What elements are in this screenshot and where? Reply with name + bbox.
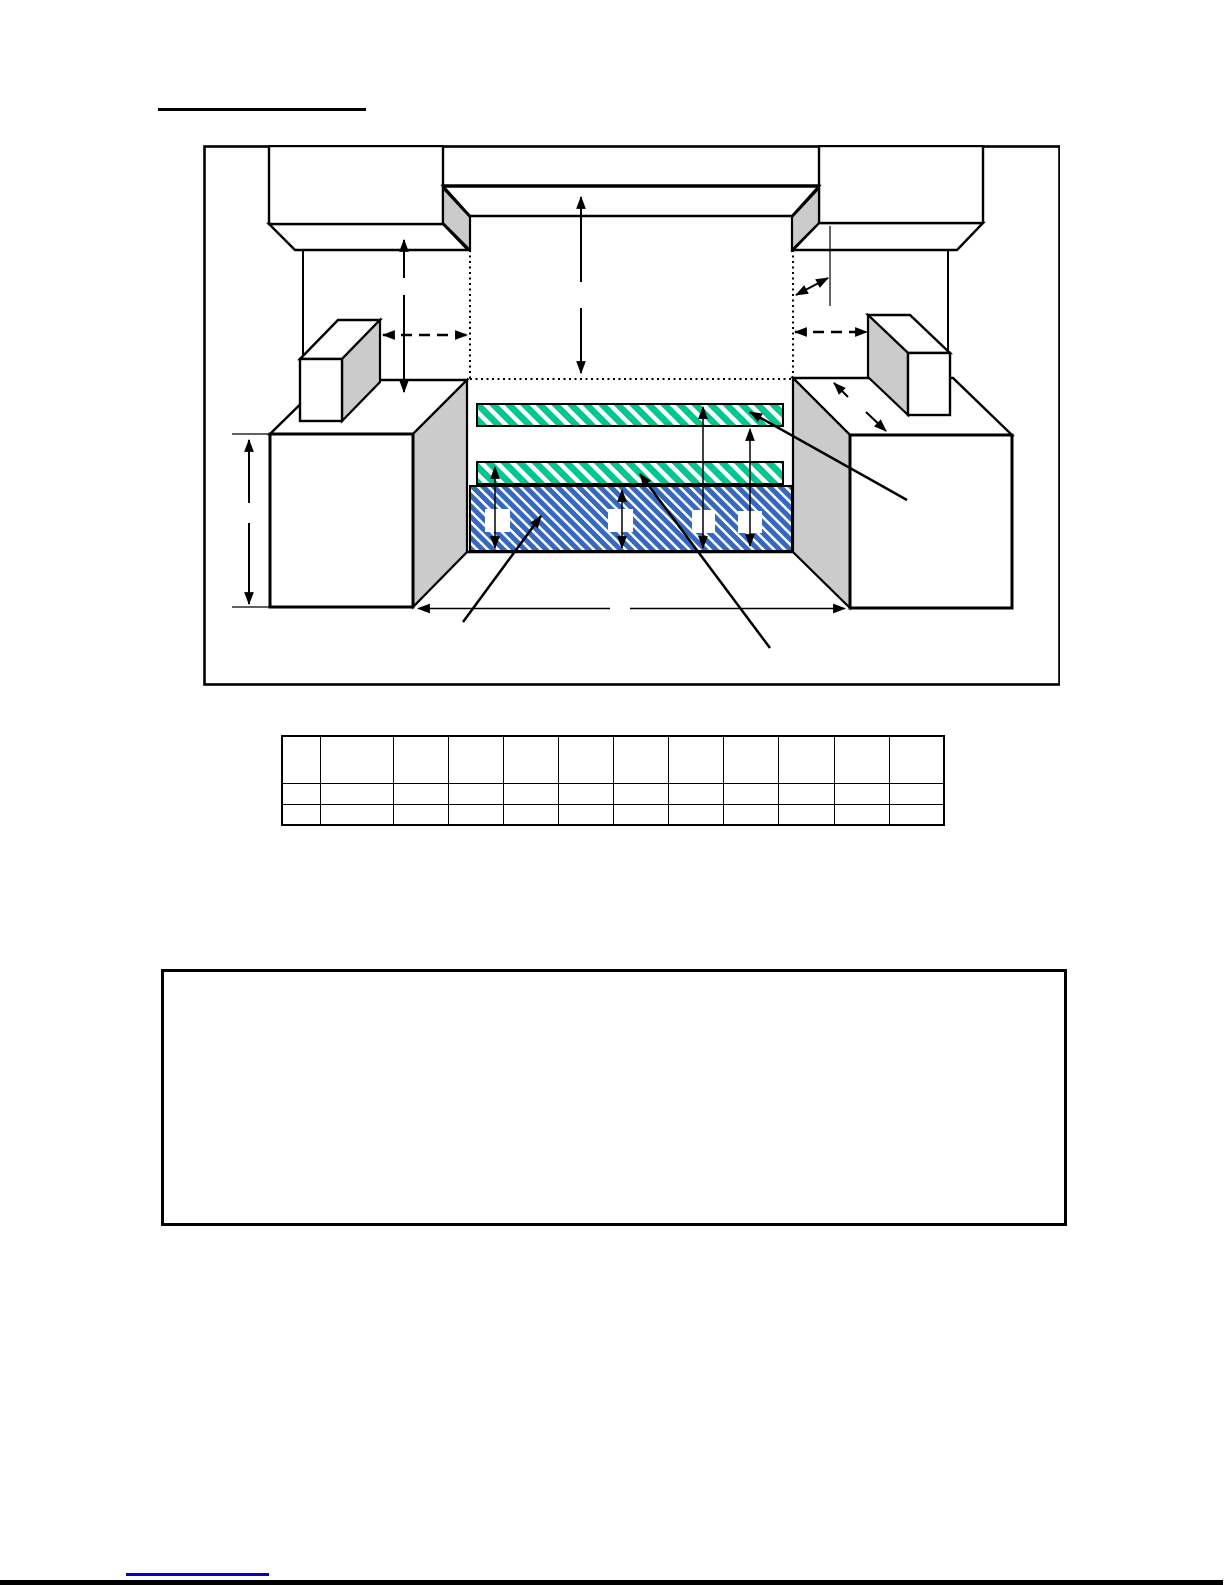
table-cell xyxy=(393,736,448,784)
dimensional-diagram xyxy=(203,145,1060,686)
table-cell xyxy=(282,805,320,826)
page-title xyxy=(158,86,366,111)
page-bottom-rule xyxy=(0,1580,1223,1585)
table-cell xyxy=(613,805,668,826)
right-pedestal xyxy=(793,378,1012,608)
footer-link-underline[interactable] xyxy=(126,1573,269,1576)
table-cell xyxy=(723,736,778,784)
table-cell xyxy=(393,805,448,826)
spec-table xyxy=(281,735,945,826)
bed-cutout-2 xyxy=(608,509,633,532)
table-cell xyxy=(503,736,558,784)
left-clamp-face xyxy=(300,359,342,421)
table-cell xyxy=(778,736,834,784)
table-cell xyxy=(320,805,393,826)
table-cell xyxy=(778,805,834,826)
table-cell xyxy=(834,784,889,805)
table-row xyxy=(282,805,944,826)
lower-platen-bar-green xyxy=(477,462,783,484)
beam-lower-band xyxy=(443,186,819,216)
left-pedestal-face xyxy=(270,434,413,607)
table-cell xyxy=(834,805,889,826)
table-row xyxy=(282,784,944,805)
table-cell xyxy=(393,784,448,805)
table-cell xyxy=(668,784,723,805)
table-cell xyxy=(503,784,558,805)
table-cell xyxy=(668,736,723,784)
table-cell xyxy=(448,805,503,826)
top-right-block-underside xyxy=(793,223,983,250)
table-cell xyxy=(723,784,778,805)
note-box xyxy=(161,969,1067,1226)
table-cell xyxy=(558,784,613,805)
table-cell xyxy=(723,805,778,826)
table-header-row xyxy=(282,736,944,784)
platen-bars xyxy=(470,404,792,551)
right-pedestal-face xyxy=(850,435,1012,608)
table-cell xyxy=(320,736,393,784)
table-cell xyxy=(448,736,503,784)
top-left-block-face xyxy=(269,146,443,224)
right-clamp-face xyxy=(908,353,950,415)
table-cell xyxy=(889,805,944,826)
table-cell xyxy=(613,784,668,805)
top-left-block-underside xyxy=(269,224,468,250)
table-cell xyxy=(834,736,889,784)
table-cell xyxy=(320,784,393,805)
top-right-block-face xyxy=(819,146,983,223)
bed-cutout-1 xyxy=(485,509,510,532)
table-cell xyxy=(668,805,723,826)
table-cell xyxy=(558,805,613,826)
upper-platen-bar-green xyxy=(477,404,783,426)
table-cell xyxy=(889,784,944,805)
table-cell xyxy=(558,736,613,784)
table-cell xyxy=(282,736,320,784)
table-cell xyxy=(503,805,558,826)
table-cell xyxy=(448,784,503,805)
table-cell xyxy=(778,784,834,805)
table-cell xyxy=(613,736,668,784)
table-cell xyxy=(889,736,944,784)
table-cell xyxy=(282,784,320,805)
